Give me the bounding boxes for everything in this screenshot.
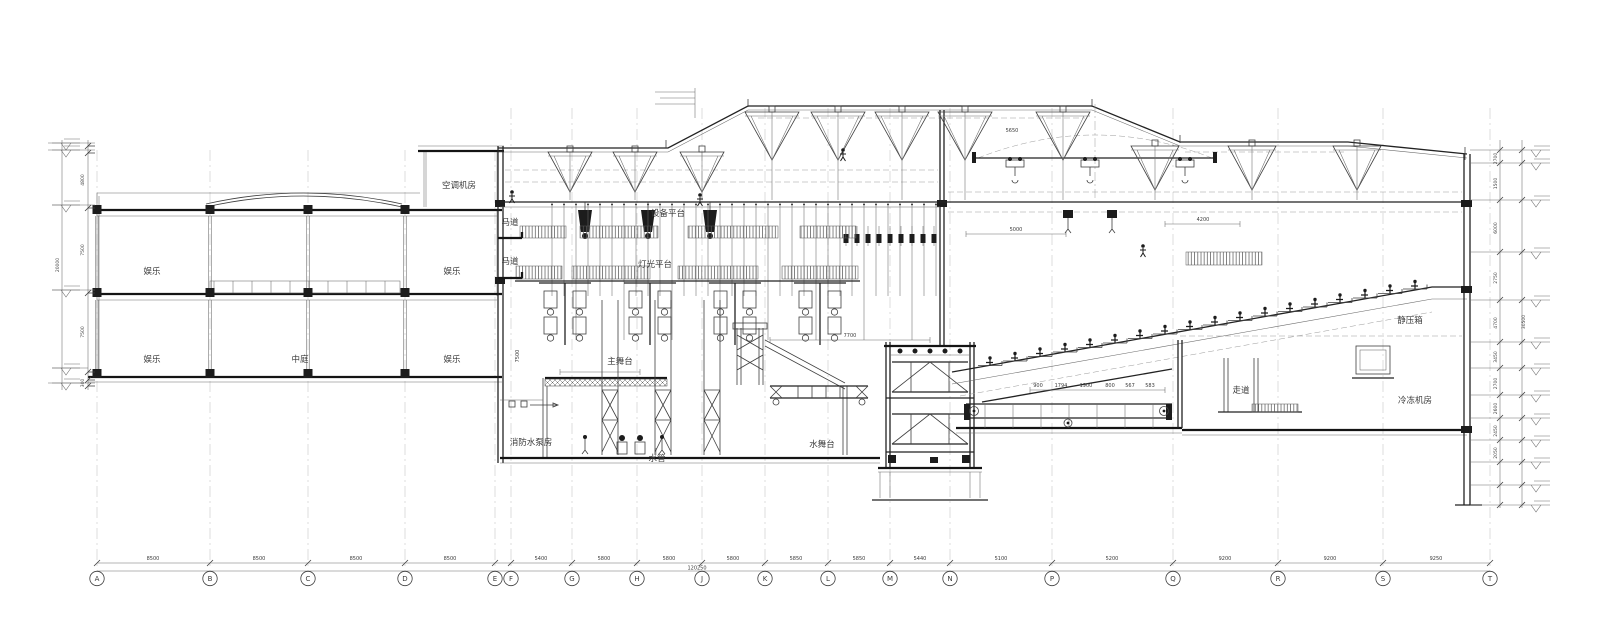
spacing-dim: 5400 [535,556,548,562]
grid-letter: P [1050,575,1054,583]
crane-beam-icon [972,104,1217,200]
elevation-flag-icon [52,201,80,212]
elevation-flag-icon [1522,458,1550,469]
elevation-flag-icon [1522,414,1550,425]
light-rig-icon [794,283,846,345]
elev-dim: 2600 [1493,403,1499,415]
lighting-rigs [539,283,846,345]
truss-icon [938,106,992,200]
elevation-flag-icon [1522,296,1550,307]
dim-label: 4200 [1197,217,1210,223]
room-label: 静压箱 [1397,315,1423,326]
hoist-trolley-icon [1006,157,1024,183]
elevation-flag-icon [1522,248,1550,259]
spacing-dim: 8500 [444,556,457,562]
total-dim: 120250 [687,565,706,571]
spacing-dim: 9200 [1324,556,1337,562]
elevation-flag-icon [52,139,80,150]
bottom-axis: ABCDEFGHJKLMNPQRST8500850085008500540058… [90,556,1497,586]
dim-label: 900 [1033,383,1043,389]
dim-label: 5000 [1010,227,1023,233]
room-label: 中庭 [291,354,309,365]
building-section-drawing: 48007500750030020000 2700150060002750470… [0,0,1600,633]
elev-dim: 4800 [80,174,86,186]
truss-icon [680,146,724,200]
spacing-dim: 8500 [350,556,363,562]
section-drawing-svg: 48007500750030020000 2700150060002750470… [0,0,1600,633]
room-label: 灯光平台 [638,259,672,270]
elev-dim: 7500 [80,326,86,338]
grid-letter: M [887,575,893,583]
hoist-trolley-icon [1081,157,1099,183]
grid-letter: L [826,575,830,583]
hoist-row [844,226,937,246]
dim-label: 1900 [1080,383,1093,389]
truss-icon [613,146,657,200]
grid-letter: A [95,575,100,583]
elevation-flag-icon [52,364,80,375]
room-label: 马道 [501,256,519,267]
seat-icon [1378,284,1402,293]
grid-letter: J [700,575,703,583]
elev-dim: 3450 [1493,351,1499,363]
dim-label: 7500 [515,350,521,363]
equipment-platforms [515,226,860,281]
room-label: 设备平台 [651,208,685,219]
spacing-dim: 5850 [790,556,803,562]
spacing-dim: 5800 [663,556,676,562]
spacing-dim: 5200 [1106,556,1119,562]
room-label: 空调机房 [442,180,476,191]
dim-label: 5650 [1006,128,1019,134]
annotation-dims: 5000420056507700750090017941900800567583 [515,128,1209,389]
grid-letter: Q [1170,575,1176,583]
auditorium [952,154,1482,505]
elev-dim: 1500 [1493,178,1499,190]
grid-letter: E [493,575,497,583]
grid-letter: S [1381,575,1386,583]
spacing-dim: 5800 [598,556,611,562]
elev-dim: 2750 [1493,272,1499,284]
spacing-dim: 5800 [727,556,740,562]
elevation-flag-icon [52,286,80,297]
grid-letter: H [634,575,639,583]
room-label: 马道 [501,217,519,228]
room-label: 水舞台 [809,439,835,450]
person-icon [1140,244,1146,257]
structural-grid-lines [97,108,1490,571]
dim-label: 800 [1105,383,1115,389]
elev-dim: 7500 [80,244,86,256]
light-rig-icon [539,283,591,345]
elevation-flag-icon [1522,338,1550,349]
elev-dim: 4700 [1493,317,1499,329]
spacing-dim: 5440 [914,556,927,562]
hoist-trolley-icon [1176,157,1194,183]
room-label: 主舞台 [607,356,633,367]
room-label: 娱乐 [143,354,161,365]
room-labels: 空调机房娱乐娱乐娱乐中庭娱乐马道马道设备平台灯光平台主舞台消防水泵房水管水舞台走… [143,180,1432,464]
grid-letter: K [763,575,768,583]
right-dimension-chain: 2700150060002750470034502700260024502050… [1470,140,1550,512]
dim-label: 567 [1125,383,1135,389]
elevation-flag-icon [1522,481,1550,492]
pit-machinery [582,435,665,454]
truss-icon [811,106,865,200]
truss-icon [1036,106,1090,200]
dim-label: 583 [1145,383,1155,389]
truss-icon [875,106,929,200]
room-label: 消防水泵房 [510,437,553,448]
elevation-flag-icon [1522,501,1550,512]
lift-tower [872,342,988,500]
elevation-flag-icon [52,379,80,390]
truss-icon [1131,140,1179,200]
elev-dim: 2700 [1493,153,1499,165]
stage-bridge [770,386,868,405]
spacing-dim: 5100 [995,556,1008,562]
grid-letter: T [1487,575,1493,583]
elevation-flag-icon [1522,146,1550,157]
light-rig-icon [624,283,676,345]
elev-dim: 2050 [1493,447,1499,459]
grid-letter: F [509,575,513,583]
elevation-flag-icon [1522,391,1550,402]
seat-icon [1403,280,1427,289]
elevation-flag-icon [1522,364,1550,375]
truss-icon [745,106,799,200]
spacing-dim: 8500 [253,556,266,562]
access-tower [733,323,930,389]
room-label: 娱乐 [143,266,161,277]
guide-tower-icon [704,300,720,455]
person-icon [509,190,515,203]
truss-icon [1333,140,1381,200]
grid-letter: R [1276,575,1281,583]
ceiling-hoists [966,210,1240,237]
elev-dim: 6000 [1493,222,1499,234]
grid-letter: N [947,575,952,583]
grid-letter: D [402,575,407,583]
room-label: 娱乐 [443,266,461,277]
elev-dim: 2450 [1493,425,1499,437]
truss-icon [1228,140,1276,200]
elev-total: 20000 [55,258,61,272]
grid-letter: C [306,575,311,583]
grid-letter: B [208,575,213,583]
elevation-flag-icon [1522,159,1550,170]
seat-icon [1328,293,1352,302]
elevation-flag-icon [1522,196,1550,207]
dim-label: 7700 [844,333,857,339]
room-label: 娱乐 [443,354,461,365]
elev-total: 30500 [1521,315,1527,329]
spacing-dim: 9250 [1430,556,1443,562]
dim-label: 1794 [1055,383,1068,389]
room-label: 走道 [1232,385,1250,396]
elevation-flag-icon [52,146,80,157]
roof-trusses [548,106,1381,239]
seat-icon [1353,289,1377,298]
spacing-dim: 5850 [853,556,866,562]
elev-dim: 300 [80,379,86,388]
elev-dim: 2700 [1493,378,1499,390]
elevation-flag-icon [1522,436,1550,447]
spacing-dim: 9200 [1219,556,1232,562]
truss-icon [548,146,592,200]
light-rig-icon [709,283,761,345]
roof-mini-dims [655,88,695,118]
stage-house [495,99,1467,463]
left-dimension-chain: 48007500750030020000 [48,139,95,390]
spacing-dim: 8500 [147,556,160,562]
room-label: 水管 [648,453,665,464]
room-label: 冷冻机房 [1398,395,1432,406]
grid-letter: G [569,575,574,583]
